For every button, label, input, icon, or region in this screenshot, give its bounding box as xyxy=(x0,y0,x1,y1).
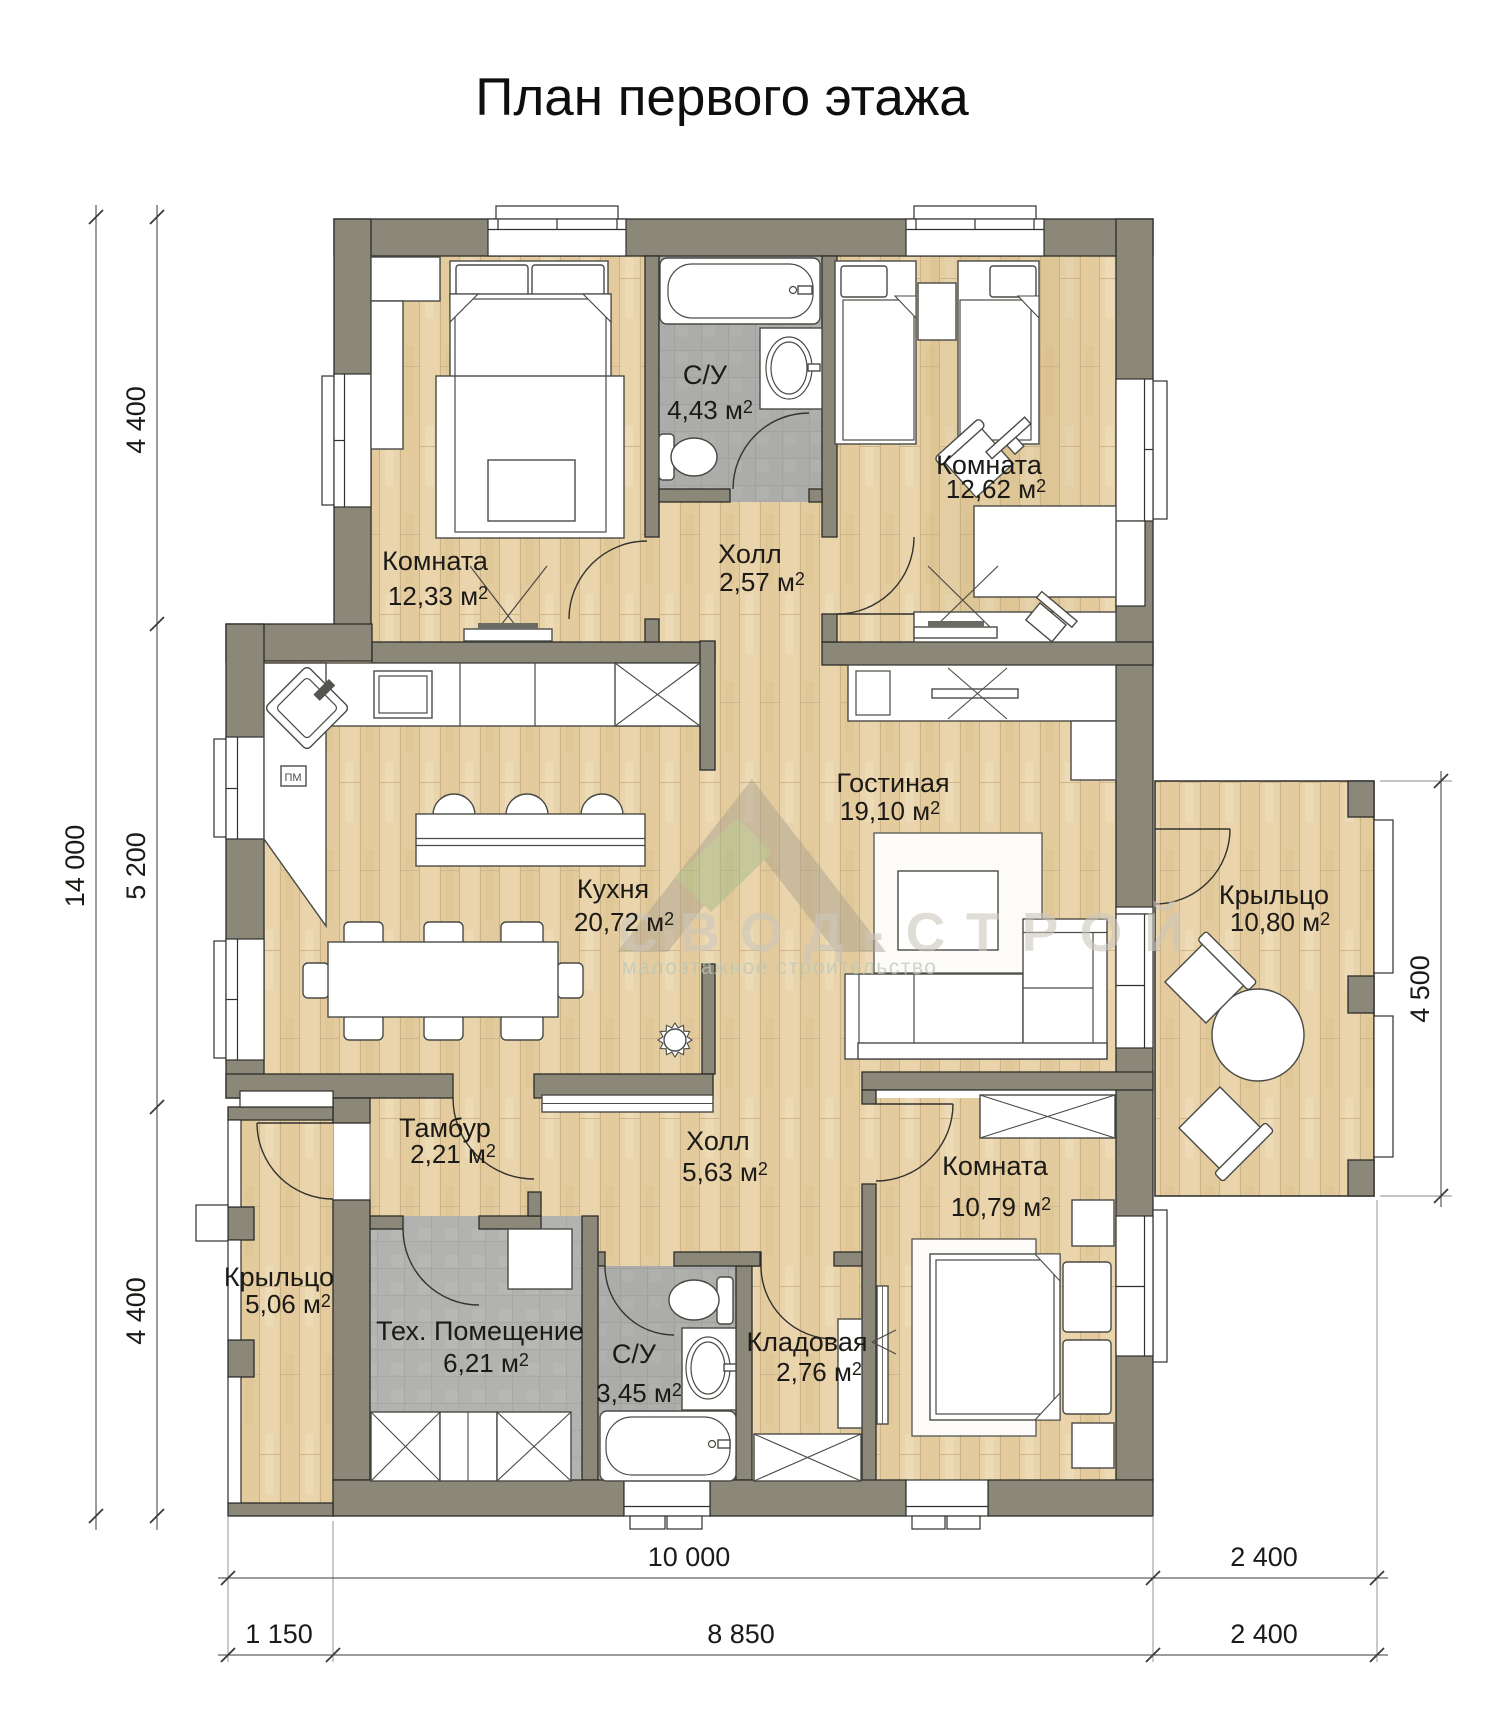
svg-text:Тех. Помещение: Тех. Помещение xyxy=(376,1316,584,1346)
svg-text:Комната: Комната xyxy=(382,546,489,576)
svg-text:19,10 м2: 19,10 м2 xyxy=(840,796,940,826)
svg-text:4 500: 4 500 xyxy=(1405,955,1435,1023)
svg-text:Крыльцо: Крыльцо xyxy=(224,1262,334,1292)
svg-text:Кладовая: Кладовая xyxy=(747,1327,868,1357)
svg-text:С/У: С/У xyxy=(612,1339,657,1369)
svg-text:2,21 м2: 2,21 м2 xyxy=(410,1139,496,1169)
svg-text:14 000: 14 000 xyxy=(60,825,90,908)
svg-text:10,79 м2: 10,79 м2 xyxy=(951,1192,1051,1222)
svg-text:10 000: 10 000 xyxy=(648,1542,731,1572)
svg-text:4,43 м2: 4,43 м2 xyxy=(667,395,753,425)
svg-text:2 400: 2 400 xyxy=(1230,1542,1298,1572)
svg-text:8 850: 8 850 xyxy=(707,1619,775,1649)
svg-text:Комната: Комната xyxy=(942,1151,1049,1181)
svg-text:6,21 м2: 6,21 м2 xyxy=(443,1348,529,1378)
svg-text:2 400: 2 400 xyxy=(1230,1619,1298,1649)
svg-text:3,45 м2: 3,45 м2 xyxy=(596,1378,682,1408)
svg-text:5,63 м2: 5,63 м2 xyxy=(682,1157,768,1187)
svg-text:Холл: Холл xyxy=(686,1126,750,1156)
svg-text:С/У: С/У xyxy=(683,360,728,390)
svg-text:20,72 м2: 20,72 м2 xyxy=(574,907,674,937)
svg-text:СВОД-СТРОЙ: СВОД-СТРОЙ xyxy=(618,900,1206,963)
svg-text:5 200: 5 200 xyxy=(121,832,151,900)
svg-text:12,62 м2: 12,62 м2 xyxy=(946,474,1046,504)
svg-text:Крыльцо: Крыльцо xyxy=(1219,880,1329,910)
svg-text:План первого этажа: План первого этажа xyxy=(475,68,969,127)
svg-text:12,33 м2: 12,33 м2 xyxy=(388,581,488,611)
svg-text:Холл: Холл xyxy=(718,539,782,569)
svg-text:10,80 м2: 10,80 м2 xyxy=(1230,907,1330,937)
svg-text:1 150: 1 150 xyxy=(245,1619,313,1649)
svg-text:ПМ: ПМ xyxy=(284,772,301,784)
svg-text:малоэтажное строительство: малоэтажное строительство xyxy=(622,956,937,979)
svg-text:2,57 м2: 2,57 м2 xyxy=(719,567,805,597)
svg-text:Гостиная: Гостиная xyxy=(836,768,949,798)
svg-text:4 400: 4 400 xyxy=(121,1277,151,1345)
svg-text:Кухня: Кухня xyxy=(577,874,649,904)
svg-text:2,76 м2: 2,76 м2 xyxy=(776,1357,862,1387)
svg-text:4 400: 4 400 xyxy=(121,386,151,454)
svg-text:5,06 м2: 5,06 м2 xyxy=(245,1289,331,1319)
